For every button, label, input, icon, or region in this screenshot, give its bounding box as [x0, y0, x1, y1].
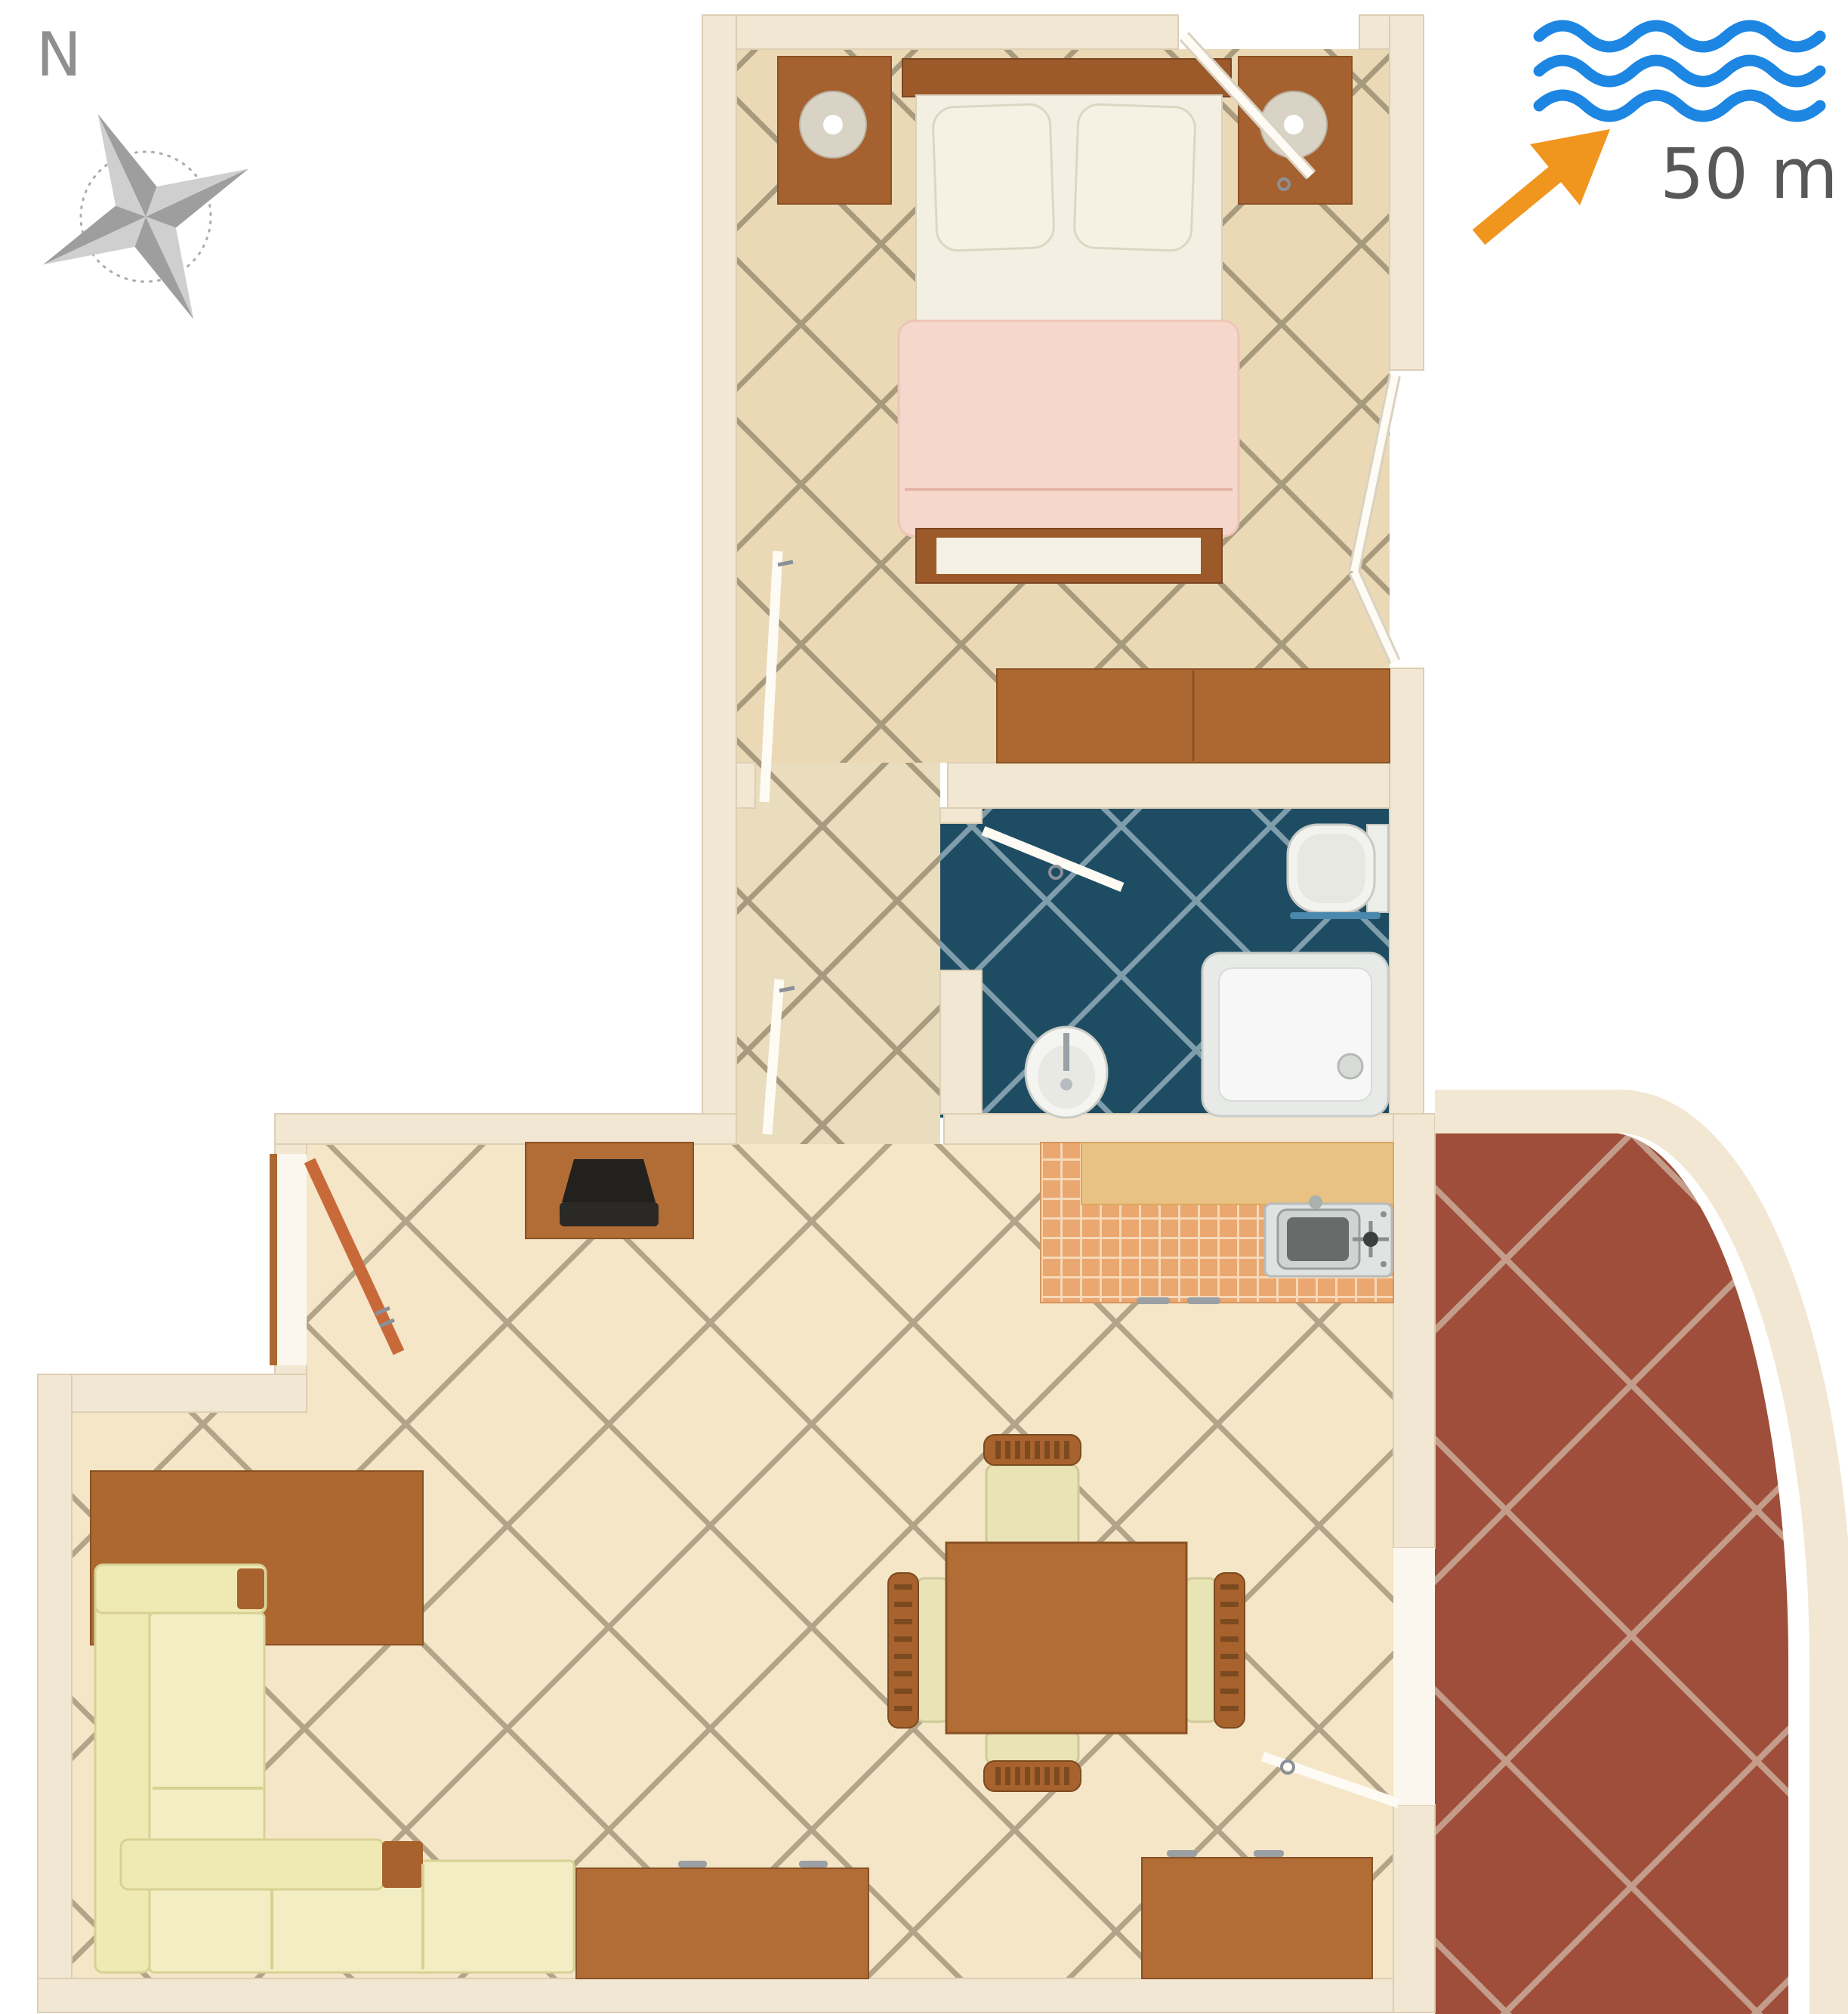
table-handle: [799, 1861, 828, 1867]
bath-mat: [1290, 912, 1381, 919]
sofa-back-bottom: [121, 1840, 384, 1889]
shower-icon: [1202, 953, 1388, 1116]
wall-entrance-stub-top: [275, 1144, 307, 1155]
compass-rose-icon: N: [0, 20, 296, 367]
sofa-seat-vertical: [150, 1613, 264, 1862]
wall-notch: [38, 1374, 307, 1412]
entrance-threshold: [275, 1154, 307, 1365]
distance-label: 50 m: [1660, 134, 1838, 214]
faucet-icon: [1309, 1195, 1322, 1209]
wardrobe: [997, 669, 1390, 763]
bed-pillow-right: [1074, 103, 1196, 251]
cabinet-handle: [1187, 1297, 1220, 1304]
compass-north-label: N: [36, 20, 82, 90]
cabinet-handle: [1137, 1297, 1170, 1304]
sea-waves-icon: [1539, 26, 1820, 116]
dining-table: [946, 1543, 1186, 1733]
wave-line: [1539, 60, 1820, 82]
bed-pillow-left: [933, 103, 1055, 251]
dining-chair-left: [888, 1573, 949, 1728]
wall-bath-divider-stub: [940, 808, 982, 823]
wall-bath-divider: [940, 970, 982, 1114]
bidet-icon: [1026, 1027, 1107, 1118]
arrow-shaft: [1486, 174, 1556, 231]
compass-star: [0, 66, 296, 368]
wall-bedroom-top: [702, 15, 1178, 49]
entrance-door-jamb: [270, 1154, 277, 1365]
kitchen: [1041, 1143, 1393, 1304]
wave-line: [1539, 26, 1820, 47]
bed-headboard: [902, 59, 1231, 97]
sofa-back-left: [95, 1565, 150, 1972]
floorplan-page: N 50 m: [0, 0, 1848, 2014]
dining-chair-right: [1185, 1573, 1245, 1728]
lamp-icon: [800, 91, 866, 158]
toilet-icon: [1288, 825, 1388, 919]
terrace-floor: [1435, 1133, 1788, 2014]
tv-icon: [560, 1159, 659, 1226]
wall-right-living-lower: [1393, 1805, 1435, 2012]
console-table-bottom-right: [1142, 1850, 1372, 1979]
dining-chair-top: [984, 1435, 1081, 1547]
wall-bedroom-divider: [948, 763, 1390, 808]
table-handle: [1254, 1850, 1284, 1857]
bed-foot-sheet: [936, 538, 1201, 574]
sea-direction-arrow-icon: [1486, 129, 1610, 231]
sink-and-cooktop-icon: [1265, 1195, 1392, 1276]
dining-chair-bottom: [984, 1731, 1081, 1791]
wall-left-bedroom-hall: [702, 15, 736, 1144]
wall-right-bedroom-upper: [1390, 15, 1424, 370]
tv-desk: [526, 1143, 693, 1238]
sofa-wood-cap: [237, 1568, 264, 1609]
wave-line: [1539, 95, 1820, 116]
table-handle: [1167, 1850, 1197, 1857]
sofa-wood-cap: [382, 1841, 423, 1888]
wall-bottom: [38, 1979, 1435, 2012]
wall-right-living-upper: [1393, 1114, 1435, 1548]
table-handle: [678, 1861, 707, 1867]
floor-plan-canvas: N 50 m: [0, 0, 1848, 2014]
terrace-door-threshold: [1393, 1548, 1435, 1805]
wall-living-top-right: [944, 1114, 1435, 1144]
wall-living-top-left: [275, 1114, 736, 1144]
console-table-bottom-center: [576, 1861, 868, 1979]
wall-right-bedroom-lower: [1390, 668, 1424, 1114]
kitchen-countertop: [1081, 1143, 1393, 1204]
wall-left-lower: [38, 1374, 72, 2012]
wall-bedroom-divider-stub: [736, 763, 755, 808]
bed-blanket: [899, 321, 1239, 536]
